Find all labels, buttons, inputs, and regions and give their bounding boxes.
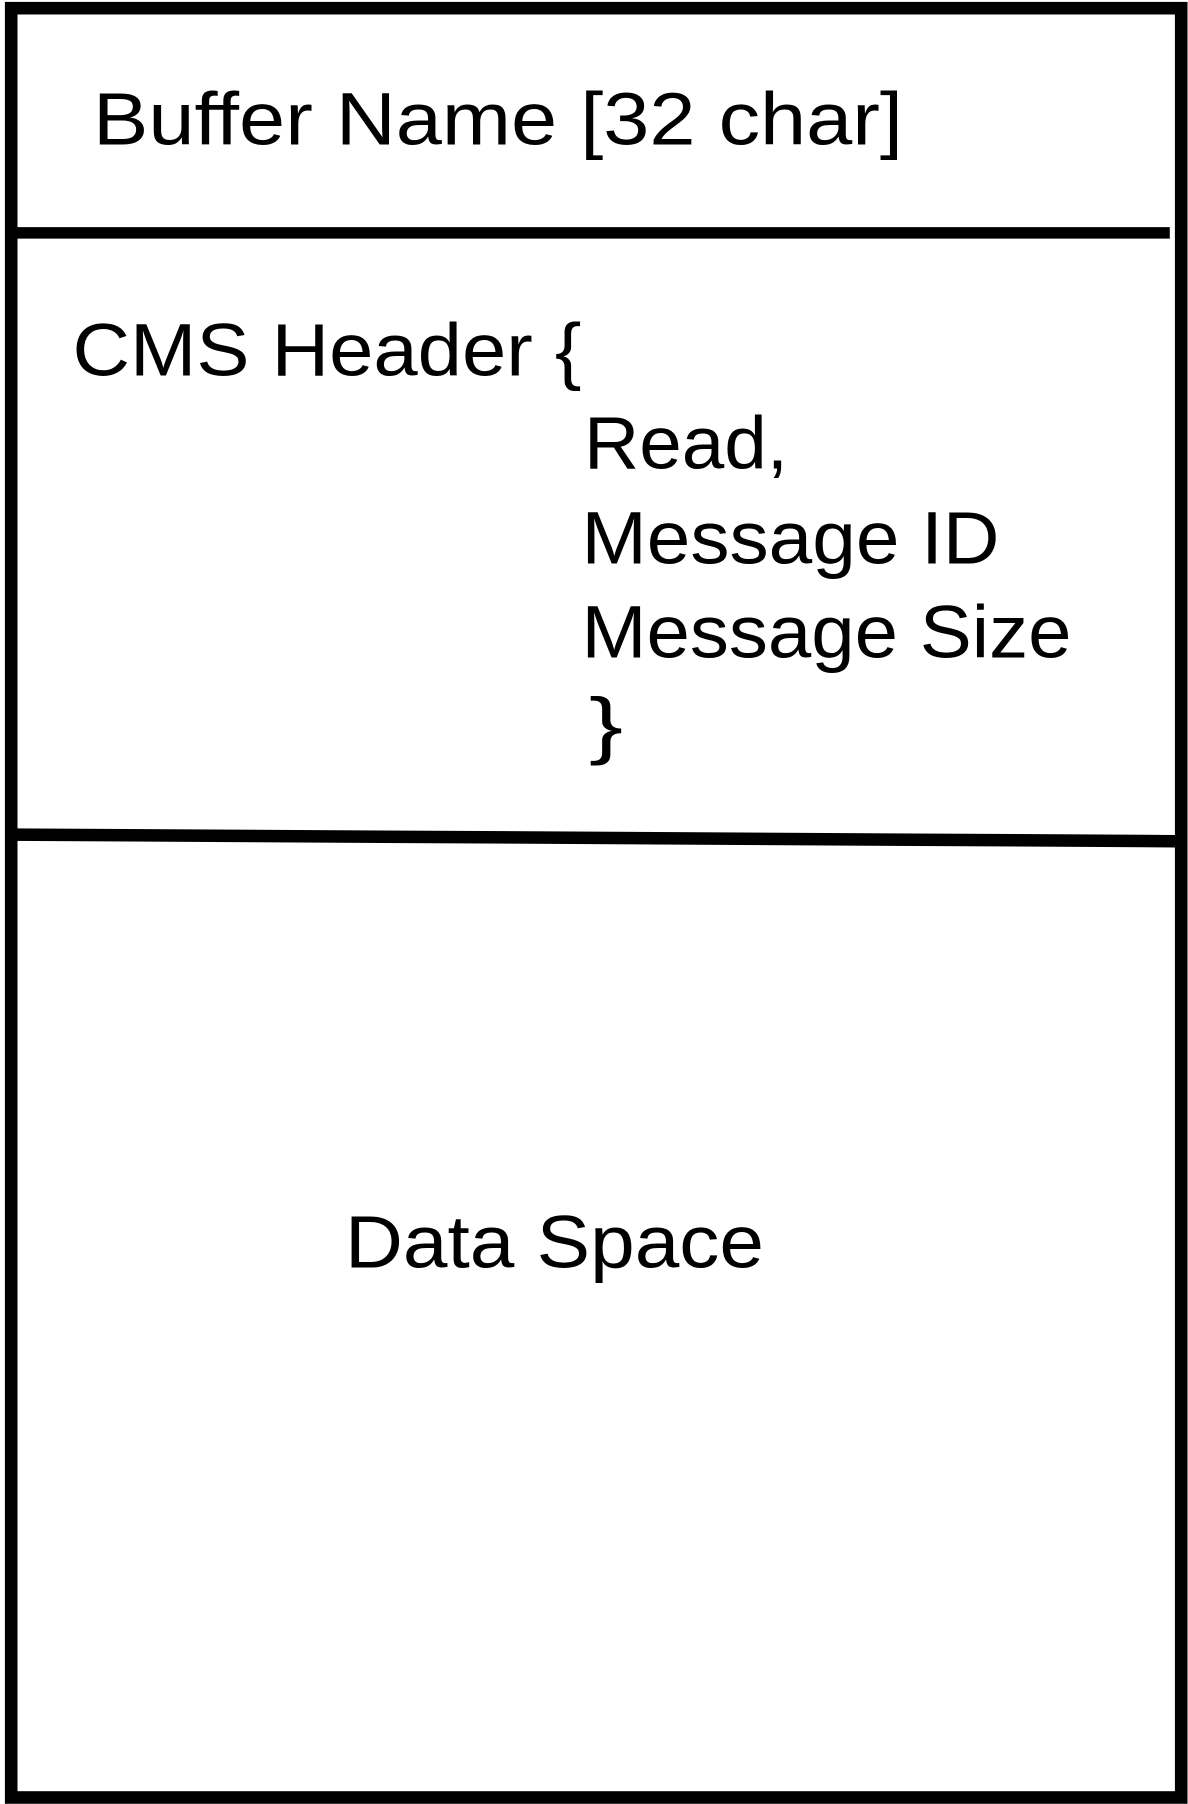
svg-text:CMS Header {: CMS Header { — [73, 309, 582, 392]
svg-text:Message Size: Message Size — [582, 590, 1072, 673]
svg-text:}: } — [589, 683, 623, 766]
svg-text:Buffer Name [32 char]: Buffer Name [32 char] — [93, 78, 903, 161]
svg-text:Message ID: Message ID — [582, 497, 1000, 580]
svg-text:Data Space: Data Space — [345, 1201, 764, 1284]
svg-text:Read,: Read, — [584, 402, 788, 485]
